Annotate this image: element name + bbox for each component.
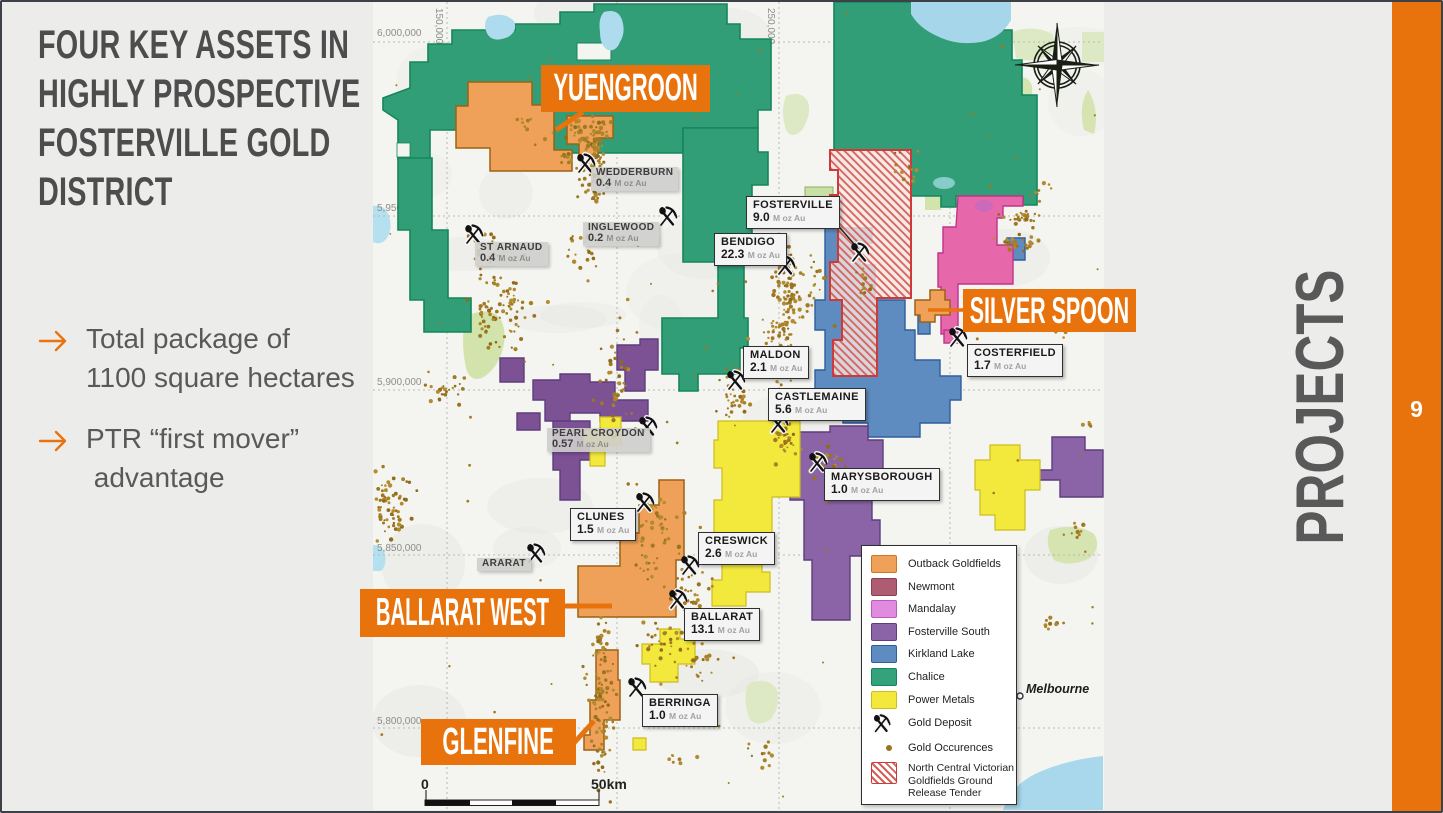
svg-text:5,900,000: 5,900,000	[377, 377, 422, 388]
svg-text:5,800,000: 5,800,000	[377, 716, 422, 727]
svg-text:6,000,000: 6,000,000	[377, 28, 422, 39]
svg-text:5,850,000: 5,850,000	[377, 543, 422, 554]
svg-text:50km: 50km	[591, 776, 627, 792]
svg-text:0: 0	[421, 776, 429, 792]
svg-text:150,000: 150,000	[433, 8, 444, 45]
svg-text:Melbourne: Melbourne	[1026, 682, 1089, 696]
